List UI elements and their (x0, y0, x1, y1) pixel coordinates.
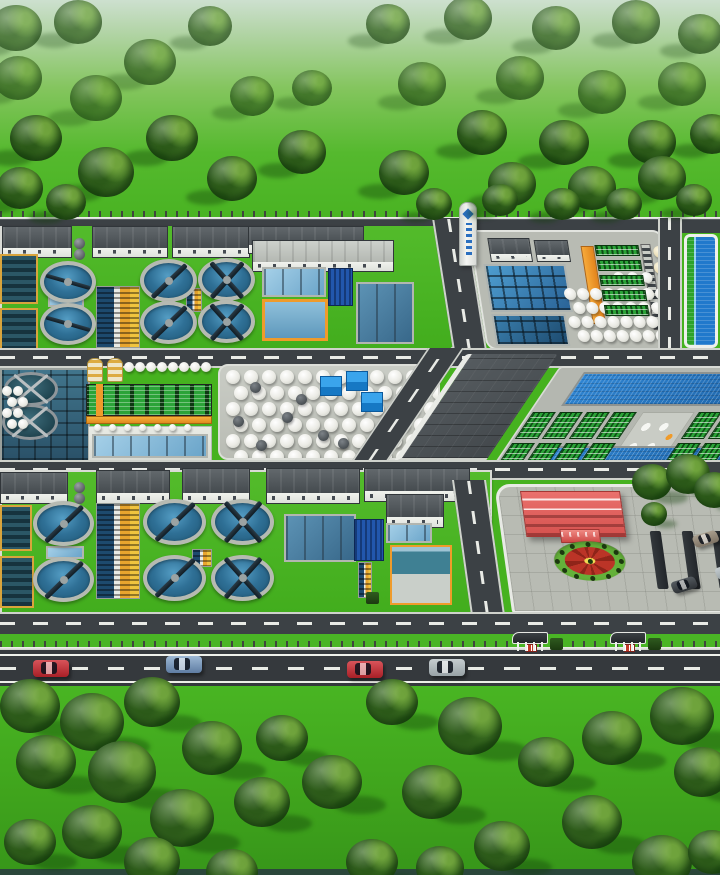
clarifier-tank (198, 258, 255, 301)
scene (0, 0, 720, 875)
storage-tank (262, 402, 276, 416)
clean-water-reservoir (684, 234, 718, 348)
pump-pool-row (92, 434, 208, 458)
storage-tank (226, 370, 240, 384)
storage-tank (298, 434, 312, 448)
storage-tank (590, 330, 604, 342)
settling-pool-upper (356, 282, 414, 344)
tree (518, 737, 574, 787)
storage-tank (168, 362, 178, 372)
warehouse-3 (172, 226, 250, 258)
storage-tank (18, 397, 28, 407)
car (429, 659, 465, 676)
storage-tank (244, 402, 258, 416)
clarifier-tank (211, 499, 274, 545)
storage-tank (324, 450, 338, 460)
tree (578, 70, 626, 113)
tree (70, 75, 122, 122)
storage-tank (7, 397, 17, 407)
storage-tank (568, 316, 582, 328)
storage-tank (306, 450, 320, 460)
biofilter-orange-base (86, 416, 212, 424)
tree (416, 188, 452, 220)
blue-container (361, 392, 383, 412)
storage-tank (7, 419, 17, 429)
tree (292, 70, 332, 106)
storage-tank (252, 450, 266, 460)
orange-rim-basin-lower (390, 545, 452, 605)
clarifier-hub (165, 319, 173, 327)
storage-tank (633, 316, 647, 328)
equipment-rack (604, 305, 650, 316)
tree (457, 110, 507, 155)
clarifier-hub (64, 278, 72, 286)
storage-tank (124, 424, 131, 431)
storage-tank (298, 370, 312, 384)
storage-tank (124, 362, 134, 372)
car-cabin (437, 661, 453, 673)
treatment-rack-unit-a (0, 254, 38, 304)
tree (562, 795, 622, 849)
storage-tank (280, 370, 294, 384)
storage-tank (252, 418, 266, 432)
tree (544, 188, 580, 220)
storage-tank (135, 362, 145, 372)
tree (0, 679, 60, 733)
tree (496, 56, 544, 99)
tree (582, 711, 642, 765)
blue-panel-building-upper (328, 268, 353, 306)
plaza (494, 484, 720, 614)
clarifier-hub (239, 574, 247, 582)
clarifier-tank (143, 555, 206, 601)
storage-tank (190, 362, 200, 372)
tree (302, 755, 362, 809)
storage-tank (316, 402, 330, 416)
clarifier-hub (171, 518, 179, 526)
tree (474, 821, 530, 871)
car-cabin (355, 663, 371, 675)
biofilter-orange-stripe (96, 384, 103, 416)
tree (366, 679, 418, 726)
storage-tank (234, 386, 248, 400)
blue-container (320, 376, 342, 396)
blue-panel-building-lower (354, 519, 384, 561)
storage-tank (226, 402, 240, 416)
storage-tank (2, 408, 12, 418)
tree (402, 765, 462, 819)
clarifier-tank (40, 261, 96, 303)
flower-bed-bushes (588, 559, 594, 564)
warehouse-6 (0, 472, 68, 504)
storage-tank (270, 386, 284, 400)
process-tank (233, 416, 244, 427)
tree (4, 819, 56, 866)
clarifier-tank (140, 301, 197, 344)
warehouse-2 (92, 226, 168, 258)
treatment-rack-unit-d (0, 556, 34, 608)
storage-tank (2, 386, 12, 396)
tree (444, 0, 492, 40)
tree (0, 167, 43, 208)
storage-tank (642, 330, 656, 342)
clarifier-hub (223, 318, 231, 326)
shelter-sign (624, 644, 635, 652)
tree (678, 14, 720, 54)
clarifier-tank (211, 555, 274, 601)
process-yard (468, 230, 681, 350)
warehouse-9 (266, 468, 360, 504)
storage-tank (154, 424, 161, 431)
tree (366, 4, 410, 44)
biofilter-block (86, 384, 212, 416)
gas-sphere (74, 493, 85, 504)
equipment-rack (597, 260, 643, 271)
tree (438, 697, 502, 755)
clarifier-hub (64, 320, 72, 328)
storage-tank (306, 418, 320, 432)
storage-tank (169, 424, 176, 431)
tree (482, 184, 518, 216)
tree (124, 39, 176, 86)
storage-tank (306, 386, 320, 400)
pool-grid-lower (284, 514, 356, 562)
gas-sphere (74, 249, 85, 260)
storage-tank (139, 424, 146, 431)
tree (398, 62, 446, 105)
car (166, 656, 202, 673)
storage-tank (280, 434, 294, 448)
storage-tank (594, 316, 608, 328)
process-tank (256, 440, 267, 451)
process-tank (296, 394, 307, 405)
storage-tank (370, 370, 384, 384)
car-cabin (174, 658, 190, 670)
tree (124, 677, 180, 727)
storage-tank (109, 424, 116, 431)
storage-tank (616, 330, 630, 342)
equipment-unit-a (96, 286, 140, 348)
clarifier-hub (239, 518, 247, 526)
tree (658, 62, 706, 105)
process-tank (282, 412, 293, 423)
storage-tank (179, 362, 189, 372)
blue-container (346, 371, 368, 391)
clarifier-hub (60, 576, 68, 584)
chemical-silo (107, 358, 123, 382)
storage-tank (334, 402, 348, 416)
tree (532, 6, 580, 49)
clarifier-tank (33, 557, 94, 602)
pool-grid-upper (262, 267, 326, 297)
small-pools-lower (386, 523, 432, 543)
tree (78, 147, 134, 197)
tree (207, 156, 257, 201)
tree (256, 715, 308, 762)
equipment-rack (602, 290, 648, 301)
hedge-box-lower (366, 592, 379, 604)
process-building-2 (534, 240, 571, 262)
storage-tank (201, 362, 211, 372)
tree (690, 114, 720, 154)
storage-tank (234, 450, 248, 460)
tree (676, 184, 712, 216)
tree (146, 115, 198, 162)
gas-sphere (74, 238, 85, 249)
bus-shelter (610, 632, 650, 654)
tree (379, 150, 429, 195)
clarifier-tank (143, 499, 206, 545)
clarifier-tank (140, 259, 197, 302)
tree (62, 805, 122, 859)
storage-tank (13, 386, 23, 396)
tree (88, 741, 156, 802)
membrane-basin-top (561, 372, 720, 406)
car-cabin (676, 579, 691, 591)
equipment-rack (594, 245, 640, 256)
tree (10, 115, 62, 162)
process-tank (318, 430, 329, 441)
flower-bed (551, 541, 629, 581)
equipment-unit-c (96, 503, 140, 599)
storage-tank (342, 418, 356, 432)
tree (230, 76, 274, 116)
storage-tank (572, 302, 586, 314)
storage-tank (629, 330, 643, 342)
aeration-basin-b (491, 314, 570, 346)
storage-tank (288, 450, 302, 460)
storage-tank (13, 408, 23, 418)
tree (641, 502, 667, 525)
storage-tank (94, 424, 101, 431)
bus-shelter (512, 632, 552, 654)
equipment-rack (599, 275, 645, 286)
orange-rim-pool-upper (262, 299, 328, 341)
parked-car (670, 576, 699, 595)
tree (234, 777, 290, 827)
tree (188, 6, 232, 46)
tree (54, 0, 102, 43)
aeration-basin-a (483, 264, 573, 312)
tree (16, 735, 76, 789)
storage-tank (603, 330, 617, 342)
storage-tank (262, 370, 276, 384)
tree (278, 130, 326, 173)
storage-tank (226, 434, 240, 448)
tree (539, 120, 589, 165)
warehouse-7 (96, 470, 170, 504)
tree (606, 188, 642, 220)
storage-tank (620, 316, 634, 328)
storage-tank (388, 370, 402, 384)
hedge-box (550, 638, 563, 650)
clarifier-hub (60, 520, 68, 528)
process-building-1 (487, 238, 533, 262)
car (33, 660, 69, 677)
clarifier-tank (198, 300, 255, 343)
chemical-silo (87, 358, 103, 382)
storage-tank (146, 362, 156, 372)
tree (46, 184, 86, 220)
car-cabin (697, 533, 712, 545)
storage-tank (577, 330, 591, 342)
process-tank (250, 382, 261, 393)
clarifier-tank (40, 303, 96, 345)
process-tank (338, 438, 349, 449)
hedge-box (648, 638, 661, 650)
tree (650, 687, 714, 745)
tree (612, 0, 660, 43)
clarifier-hub (171, 574, 179, 582)
clarifier-hub (223, 276, 231, 284)
gas-sphere (74, 482, 85, 493)
treatment-rack-unit-c (0, 505, 32, 551)
clarifier-hub (165, 277, 173, 285)
storage-tank (157, 362, 167, 372)
storage-tank (607, 316, 621, 328)
tree (182, 721, 242, 775)
clarifier-tank (33, 501, 94, 546)
street-vertical-2 (658, 218, 682, 350)
car (347, 661, 383, 678)
parking-hedge (650, 531, 669, 589)
shelter-sign (526, 644, 537, 652)
storage-tank (270, 450, 284, 460)
storage-tank (184, 424, 191, 431)
car-cabin (41, 662, 57, 674)
storage-tank (18, 419, 28, 429)
